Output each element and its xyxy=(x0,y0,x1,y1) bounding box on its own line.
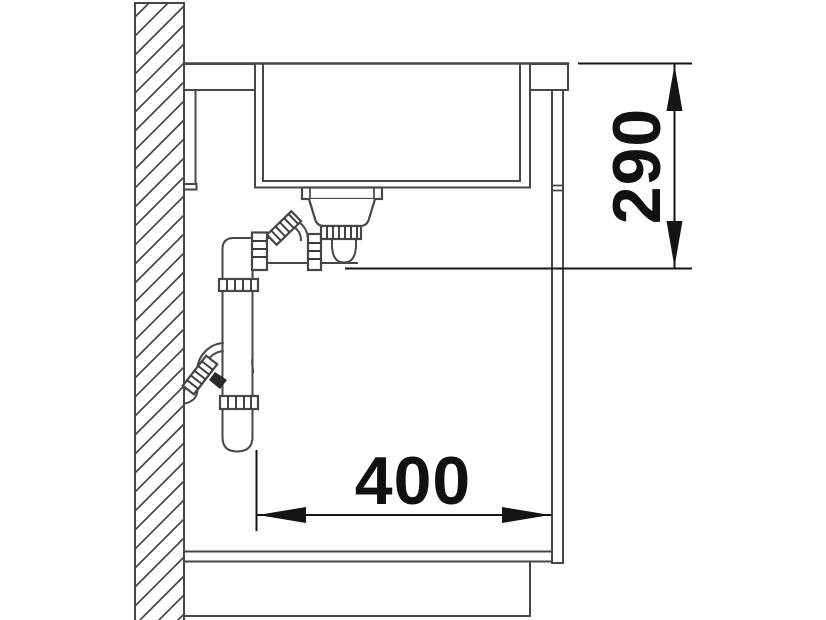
nut-body xyxy=(252,233,267,271)
strainer-outlet xyxy=(332,239,356,263)
wall-hatching xyxy=(135,2,184,620)
cabinet-bottom-shelf xyxy=(184,552,552,562)
arrowhead-up xyxy=(667,65,683,111)
sink-bowl xyxy=(255,64,530,188)
front-panel-outline xyxy=(552,90,563,563)
pipe-overlap-mask xyxy=(224,336,251,378)
arrowhead-left xyxy=(258,507,306,523)
cabinet-front-panel xyxy=(552,90,563,563)
union-nut-right xyxy=(308,234,321,270)
drain-assembly xyxy=(183,188,382,452)
countertop xyxy=(184,64,568,91)
union-nut-trap xyxy=(220,396,258,409)
dimension-vertical: 290 xyxy=(345,64,692,269)
strainer-flange xyxy=(302,188,382,200)
arrowhead-down xyxy=(667,221,683,267)
union-nut-left xyxy=(252,233,267,271)
cabinet-plinth xyxy=(184,562,530,617)
front-panel-joint xyxy=(552,186,563,191)
arrowhead-right xyxy=(502,507,550,523)
dimension-label-horizontal: 400 xyxy=(355,443,471,519)
batten-foot xyxy=(184,184,197,190)
nut-body xyxy=(220,396,258,409)
sink-section-drawing: 290 400 xyxy=(0,0,826,620)
drawing-canvas: 290 400 xyxy=(0,0,826,620)
wall-batten xyxy=(184,92,197,190)
countertop-right-section xyxy=(530,64,568,90)
nut-body xyxy=(308,234,321,270)
strainer-cup xyxy=(309,199,375,226)
trap-bottom-cap xyxy=(223,430,253,452)
overflow-bend xyxy=(267,211,308,245)
union-nut-vertical xyxy=(219,279,258,291)
outlet-ribbed-union xyxy=(183,356,217,395)
wall-section xyxy=(135,2,184,620)
dimension-label-vertical: 290 xyxy=(599,108,675,224)
pipe-inner-boundary xyxy=(253,263,358,437)
nut-body xyxy=(219,279,258,291)
countertop-left-section xyxy=(184,64,255,90)
dimension-horizontal: 400 xyxy=(257,443,552,531)
